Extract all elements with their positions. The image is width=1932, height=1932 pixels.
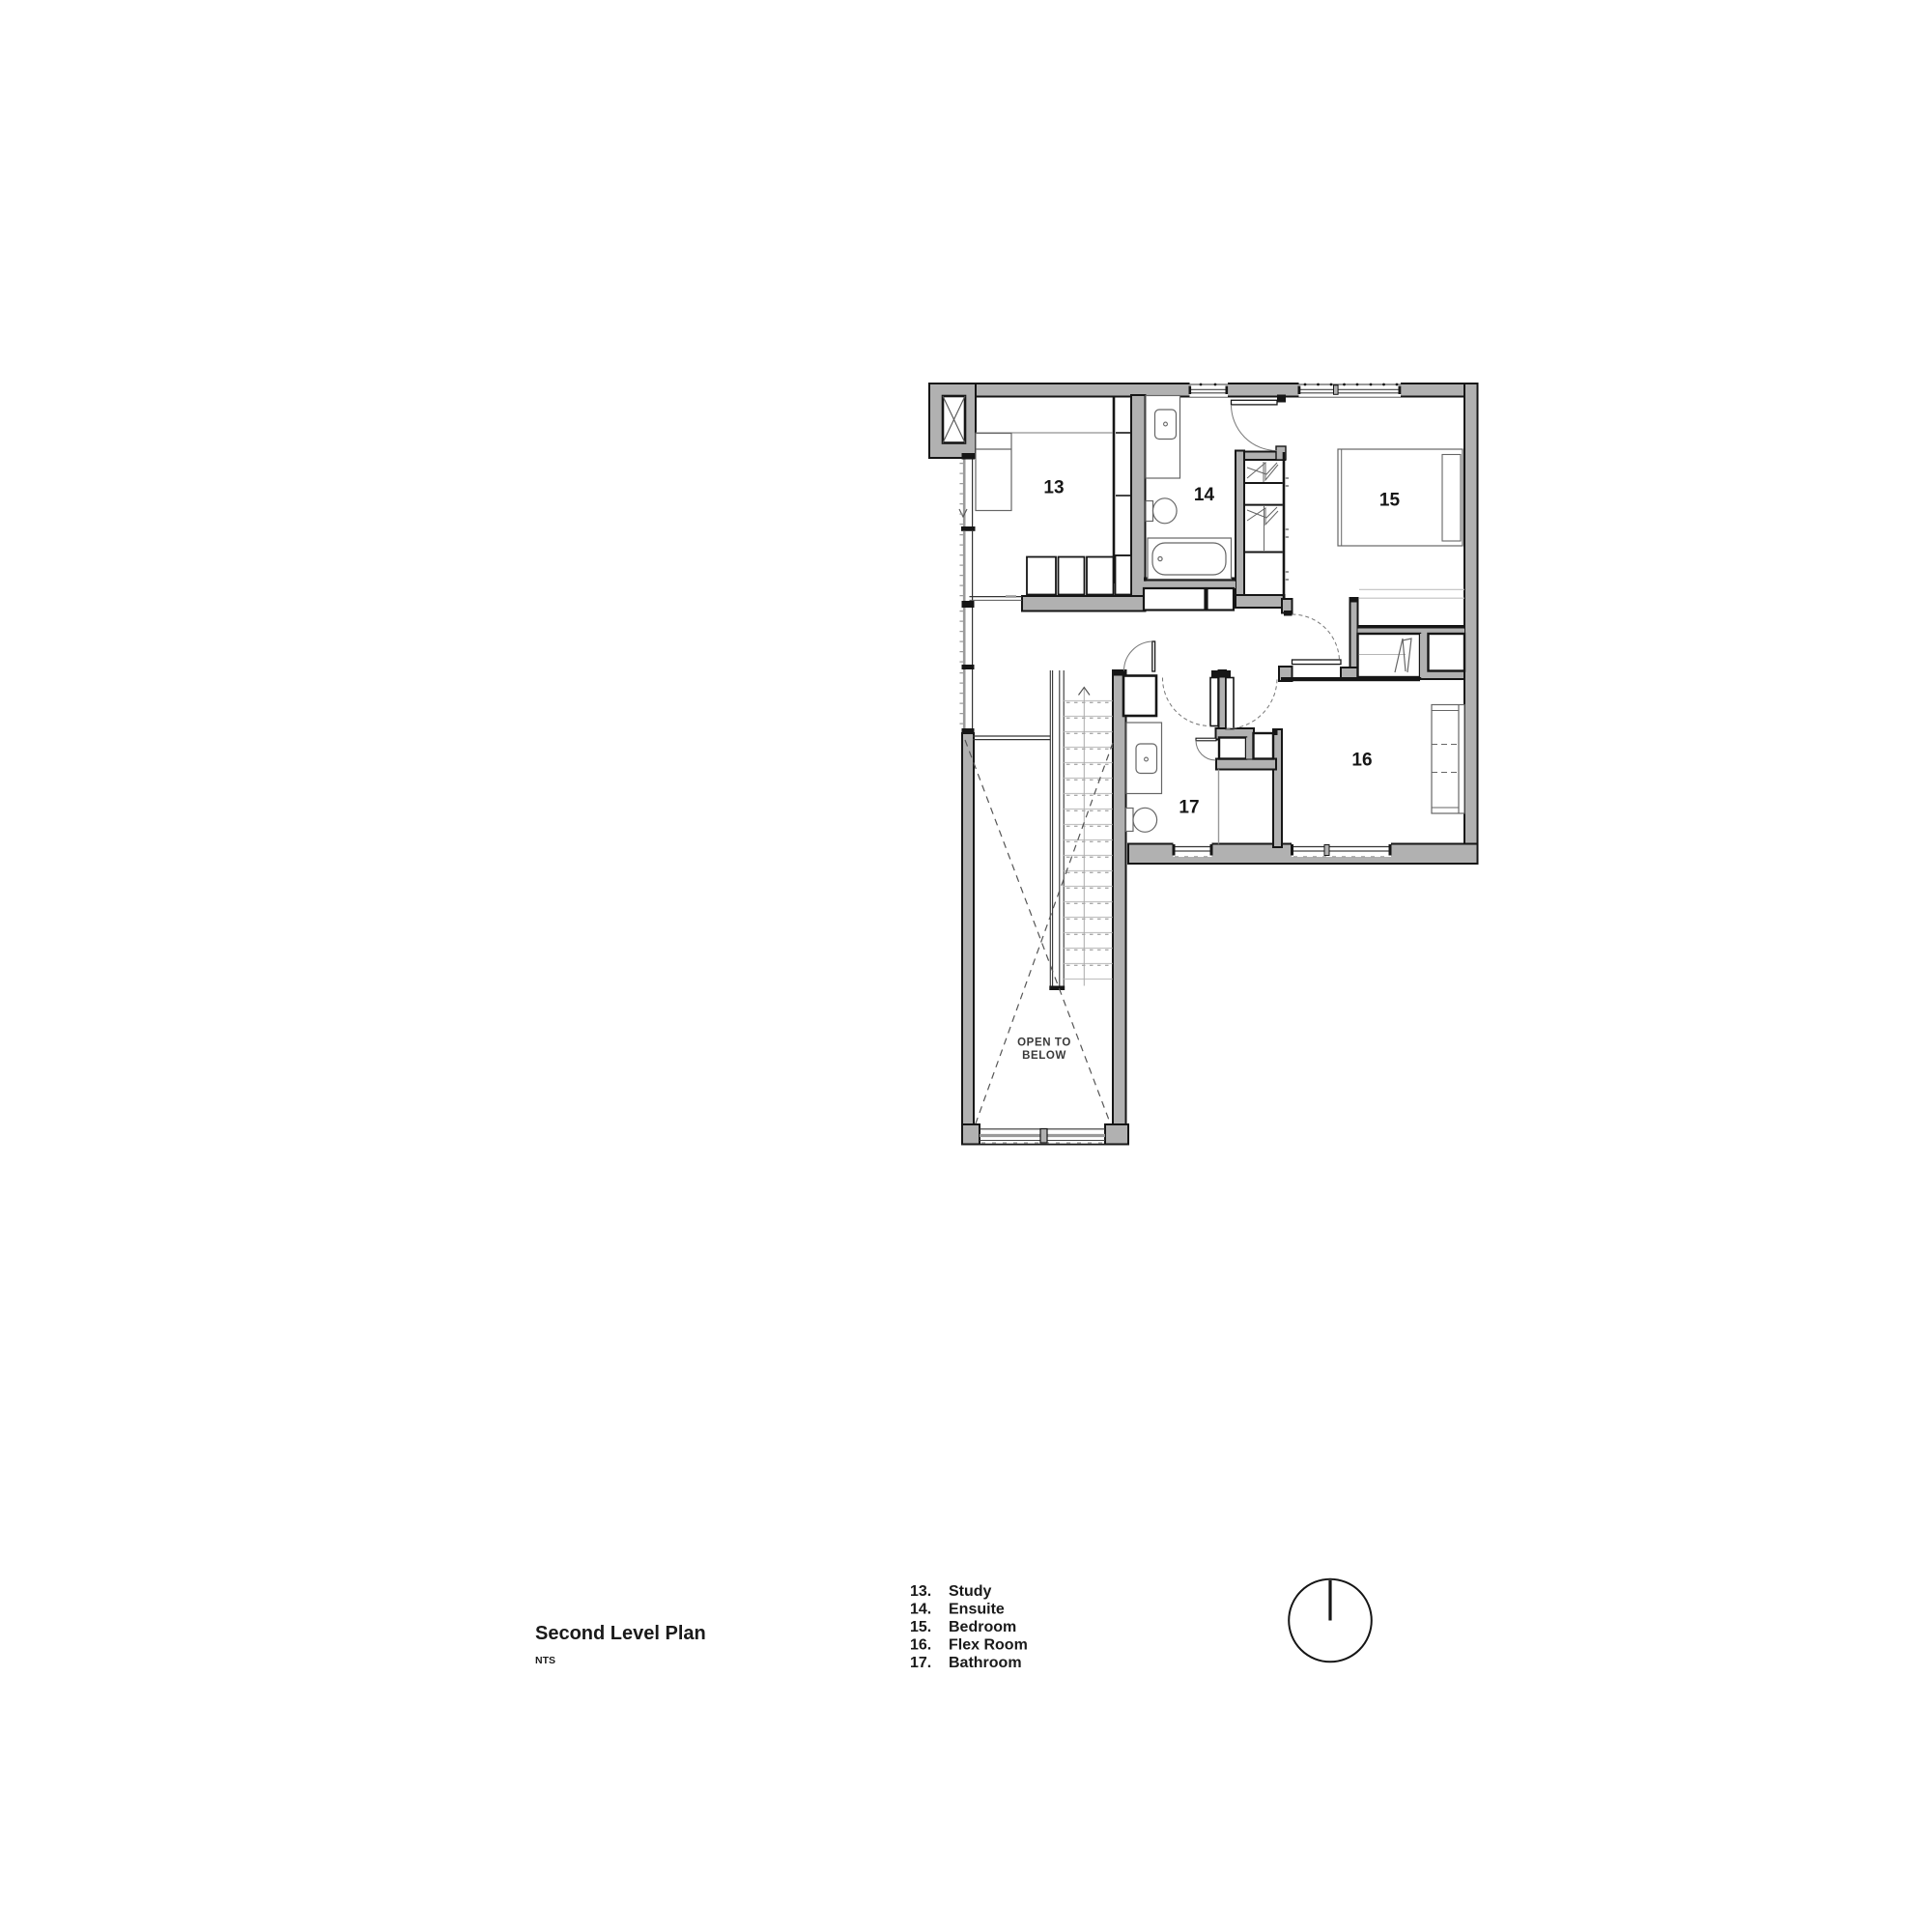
svg-text:15.: 15. <box>910 1619 931 1635</box>
svg-text:OPEN TO: OPEN TO <box>1017 1037 1071 1049</box>
svg-text:13: 13 <box>1043 478 1064 498</box>
svg-text:15: 15 <box>1379 491 1401 511</box>
svg-text:17: 17 <box>1179 798 1199 818</box>
svg-text:Flex Room: Flex Room <box>949 1637 1028 1654</box>
svg-text:NTS: NTS <box>535 1655 555 1666</box>
svg-text:Second Level Plan: Second Level Plan <box>535 1623 706 1644</box>
svg-text:17.: 17. <box>910 1655 931 1671</box>
svg-text:Study: Study <box>949 1583 992 1600</box>
svg-text:BELOW: BELOW <box>1022 1050 1066 1062</box>
svg-text:14.: 14. <box>910 1602 931 1618</box>
svg-text:Ensuite: Ensuite <box>949 1602 1005 1618</box>
svg-text:16.: 16. <box>910 1637 931 1654</box>
svg-text:13.: 13. <box>910 1583 931 1600</box>
svg-text:16: 16 <box>1351 751 1372 771</box>
svg-text:Bedroom: Bedroom <box>949 1619 1016 1635</box>
svg-text:14: 14 <box>1194 485 1215 505</box>
svg-text:Bathroom: Bathroom <box>949 1655 1022 1671</box>
